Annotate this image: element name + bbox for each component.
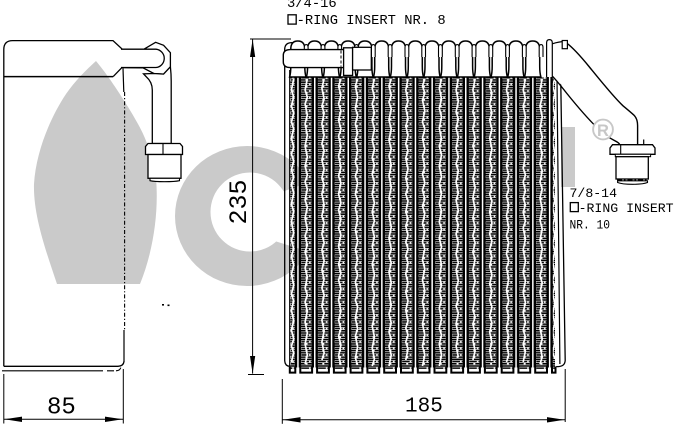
svg-text:R: R	[597, 122, 609, 140]
svg-text:235: 235	[225, 179, 254, 224]
svg-text:185: 185	[405, 396, 443, 419]
svg-text:7/8-14: 7/8-14	[570, 186, 618, 201]
svg-text:85: 85	[47, 395, 76, 422]
svg-text:NR. 10: NR. 10	[570, 218, 611, 233]
svg-text:-RING INSERT: -RING INSERT	[579, 201, 674, 216]
svg-text:-RING INSERT NR. 8: -RING INSERT NR. 8	[297, 14, 446, 29]
svg-text:3/4-16: 3/4-16	[287, 0, 337, 12]
